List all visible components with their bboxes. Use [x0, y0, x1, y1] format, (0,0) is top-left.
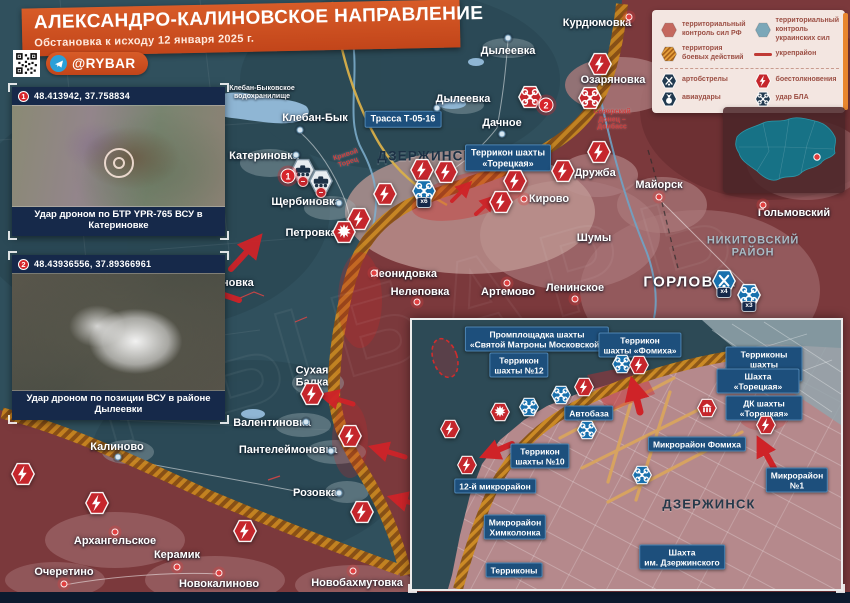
- settlement-dot[interactable]: [328, 448, 335, 455]
- legend-item[interactable]: боестолкновения: [754, 73, 840, 89]
- map-legend: территориальный контроль сил РФтерритори…: [652, 10, 845, 113]
- inset-corner-mark: [8, 83, 17, 92]
- settlement-dot[interactable]: [626, 14, 633, 21]
- settlement-dot[interactable]: [656, 194, 663, 201]
- legend-icon-lineRed[interactable]: [754, 53, 772, 56]
- place-label[interactable]: Валентиновка: [233, 417, 311, 429]
- place-label[interactable]: Клебан-Быковское водохранилище: [229, 85, 295, 101]
- river-label[interactable]: Северский Донец – Донбасс: [593, 108, 630, 131]
- video-caption: Удар дроном по позиции ВСУ в районе Дыле…: [12, 391, 225, 420]
- map-icon-veh[interactable]: –: [309, 169, 333, 193]
- city-inset-dzerzhinsk: Промплощадка шахты «Святой Матроны Моско…: [410, 318, 843, 591]
- legend-divider[interactable]: [660, 68, 839, 69]
- channel-handle: @RYBAR: [72, 56, 136, 71]
- map-icon-artB[interactable]: x4: [712, 269, 736, 293]
- map-icon-uavB[interactable]: x6: [412, 179, 436, 203]
- settlement-dot[interactable]: [414, 299, 421, 306]
- inset-callout-label[interactable]: 12-й микрорайон: [454, 478, 536, 493]
- map-icon-clash[interactable]: [350, 500, 374, 524]
- settlement-dot[interactable]: [371, 270, 378, 277]
- title-banner: АЛЕКСАНДРО-КАЛИНОВСКОЕ НАПРАВЛЕНИЕ Обста…: [22, 0, 461, 56]
- place-label[interactable]: Леонидовка: [371, 268, 437, 280]
- map-icon-clash[interactable]: [489, 190, 513, 214]
- map-icon-strike[interactable]: [490, 402, 510, 422]
- map-icon-clash[interactable]: [11, 462, 35, 486]
- inset-callout-label[interactable]: Промплощадка шахты «Святой Матроны Моско…: [465, 326, 609, 351]
- inset-corner-mark: [8, 231, 17, 240]
- legend-label[interactable]: боестолкновения: [776, 76, 837, 85]
- legend-icon-uavD[interactable]: [754, 91, 772, 107]
- place-label[interactable]: Архангельское: [74, 535, 156, 547]
- city-inset-label-layer: Промплощадка шахты «Святой Матроны Моско…: [412, 320, 841, 589]
- legend-icon-clash[interactable]: [754, 73, 772, 89]
- map-icon-uavB[interactable]: [551, 385, 571, 405]
- video-caption: Удар дроном по БТР YPR-765 ВСУ в Катерин…: [12, 207, 225, 236]
- icon-count-badge: x3: [741, 301, 756, 312]
- inset-corner-mark: [220, 231, 229, 240]
- settlement-dot[interactable]: [572, 296, 579, 303]
- legend-icon-hexStripe[interactable]: [660, 46, 678, 62]
- legend-label[interactable]: артобстрелы: [682, 76, 728, 85]
- inset-corner-mark: [836, 584, 845, 593]
- map-icon-uavB[interactable]: [577, 420, 597, 440]
- settlement-dot[interactable]: [336, 200, 343, 207]
- settlement-dot[interactable]: [760, 202, 767, 209]
- place-label[interactable]: Пантелеймоновка: [239, 444, 337, 456]
- place-label[interactable]: Клебан-Бык: [282, 112, 348, 124]
- settlement-dot[interactable]: [336, 490, 343, 497]
- map-icon-clash[interactable]: [457, 455, 477, 475]
- map-icon-uavB[interactable]: x3: [737, 283, 761, 307]
- drone-video-frame[interactable]: [12, 105, 225, 207]
- inset-corner-mark: [220, 83, 229, 92]
- settlement-dot[interactable]: [303, 419, 310, 426]
- map-icon-clash[interactable]: [85, 491, 109, 515]
- icon-count-badge: –: [316, 187, 327, 198]
- map-icon-clash[interactable]: [434, 160, 458, 184]
- legend-icon-hexBlue[interactable]: [754, 22, 772, 38]
- settlement-dot[interactable]: [115, 454, 122, 461]
- settlement-dot[interactable]: [499, 131, 506, 138]
- inset-corner-mark: [8, 251, 17, 260]
- settlement-dot[interactable]: [174, 564, 181, 571]
- qr-code[interactable]: [13, 50, 40, 77]
- place-label[interactable]: Калиново: [90, 441, 143, 453]
- settlement-dot[interactable]: [521, 196, 528, 203]
- place-label[interactable]: Кирово: [529, 193, 569, 205]
- drone-video-inset-1[interactable]: 1 48.413942, 37.758834 Удар дроном по БТ…: [12, 87, 225, 236]
- inset-corner-mark: [220, 415, 229, 424]
- river-label[interactable]: Кривой Торец: [332, 148, 361, 171]
- inset-callout-label[interactable]: Автобаза: [564, 405, 613, 420]
- place-label[interactable]: Нелеповка: [391, 286, 450, 298]
- inset-city-label[interactable]: ДЗЕРЖИНСК: [662, 498, 755, 513]
- legend-label[interactable]: авиаудары: [682, 94, 721, 103]
- numbered-marker[interactable]: 2: [539, 98, 554, 113]
- icon-count-badge: –: [298, 176, 309, 187]
- inset-callout-label[interactable]: Терриконы: [486, 562, 543, 577]
- numbered-marker[interactable]: 1: [281, 169, 296, 184]
- telegram-channel-badge[interactable]: @RYBAR: [46, 52, 148, 75]
- inset-callout-label[interactable]: Шахта «Торецкая»: [717, 368, 800, 393]
- place-label[interactable]: Курдюмовка: [563, 17, 631, 29]
- legend-item[interactable]: артобстрелы: [660, 73, 746, 89]
- inset-callout-label[interactable]: Микрорайон Химколонка: [484, 514, 546, 539]
- map-icon-clash[interactable]: [300, 382, 324, 406]
- coordinates-text: 48.413942, 37.758834: [34, 91, 130, 101]
- legend-item[interactable]: удар БЛА: [754, 91, 840, 107]
- inset-callout-label[interactable]: Террикон шахты «Фомиха»: [598, 332, 681, 357]
- legend-item[interactable]: территориальный контроль сил РФ: [660, 17, 746, 43]
- map-screenshot: РЫБАРЬ КурдюмовкаДылеевкаДылеевкаОзаряно…: [0, 0, 850, 603]
- inset-callout-label[interactable]: Шахта им. Дзержинского: [639, 544, 725, 569]
- map-icon-clash[interactable]: [551, 159, 575, 183]
- place-label[interactable]: Майорск: [635, 179, 682, 191]
- icon-count-badge: x4: [716, 287, 731, 298]
- place-label[interactable]: Новокалиново: [179, 578, 259, 590]
- telegram-icon: [50, 55, 67, 72]
- legend-item[interactable]: авиаудары: [660, 91, 746, 107]
- inset-corner-mark: [220, 251, 229, 260]
- legend-label[interactable]: укрепрайон: [776, 50, 817, 59]
- map-icon-clash[interactable]: [373, 182, 397, 206]
- legend-icon-artD[interactable]: [660, 73, 678, 89]
- map-icon-strike[interactable]: [332, 220, 356, 244]
- map-icon-clash[interactable]: [574, 377, 594, 397]
- legend-label[interactable]: территория боевых действий: [682, 45, 743, 63]
- place-label[interactable]: НИКИТОВСКИЙ РАЙОН: [707, 235, 799, 260]
- legend-item[interactable]: территориальный контроль украинских сил: [754, 17, 840, 43]
- drone-video-frame[interactable]: [12, 273, 225, 391]
- inset-callout-label[interactable]: Террикон шахты №12: [489, 352, 548, 377]
- legend-label[interactable]: территориальный контроль украинских сил: [776, 17, 840, 43]
- settlement-dot[interactable]: [434, 105, 441, 112]
- settlement-dot[interactable]: [350, 568, 357, 575]
- place-label[interactable]: Ленинское: [546, 282, 604, 294]
- settlement-dot[interactable]: [505, 35, 512, 42]
- inset-callout-label[interactable]: Террикон шахты №10: [510, 443, 569, 468]
- map-icon-clash[interactable]: [440, 419, 460, 439]
- inset-callout-label[interactable]: Микрорайон Фомиха: [648, 436, 746, 451]
- place-label[interactable]: Артемово: [481, 286, 535, 298]
- ukraine-map: [723, 107, 845, 193]
- map-icon-uavR[interactable]: [578, 86, 602, 110]
- map-icon-uavB[interactable]: [632, 465, 652, 485]
- place-label[interactable]: Шумы: [577, 232, 612, 244]
- settlement-dot[interactable]: [504, 280, 511, 287]
- place-label[interactable]: Розовка: [293, 487, 337, 499]
- legend-label[interactable]: удар БЛА: [776, 94, 809, 103]
- place-label[interactable]: Петровка: [285, 227, 336, 239]
- legend-label[interactable]: территориальный контроль сил РФ: [682, 21, 746, 39]
- place-label[interactable]: Катериновка: [229, 150, 299, 162]
- crosshair-reticle: [104, 148, 134, 178]
- map-callout-label[interactable]: Трасса Т-05-16: [365, 111, 442, 128]
- settlement-dot[interactable]: [297, 127, 304, 134]
- marker-number-badge: 2: [18, 259, 29, 270]
- video-header: 2 48.43936556, 37.89366961: [12, 255, 225, 273]
- fortification-line-icon[interactable]: [754, 53, 772, 56]
- place-label[interactable]: Дылеевка: [436, 93, 491, 105]
- inset-callout-label[interactable]: Микрорайон №1: [766, 467, 828, 492]
- bottom-strip: [0, 592, 850, 603]
- video-header: 1 48.413942, 37.758834: [12, 87, 225, 105]
- map-icon-clash[interactable]: [629, 355, 649, 375]
- map-icon-uavB[interactable]: [519, 397, 539, 417]
- drone-video-inset-2[interactable]: 2 48.43936556, 37.89366961 Удар дроном п…: [12, 255, 225, 420]
- place-label[interactable]: Дружба: [574, 167, 615, 179]
- map-icon-clash[interactable]: [756, 415, 776, 435]
- legend-icon-hexRed[interactable]: [660, 22, 678, 38]
- legend-item[interactable]: территория боевых действий: [660, 45, 746, 63]
- coordinates-text: 48.43936556, 37.89366961: [34, 259, 151, 269]
- legend-icon-bombD[interactable]: [660, 91, 678, 107]
- place-label[interactable]: Дылеевка: [481, 45, 536, 57]
- place-label[interactable]: Новобахмутовка: [311, 577, 403, 589]
- place-label[interactable]: Очеретино: [34, 566, 93, 578]
- inset-corner-mark: [408, 584, 417, 593]
- place-label[interactable]: Гольмовский: [758, 207, 830, 219]
- map-icon-clash[interactable]: [338, 424, 362, 448]
- map-icon-clash[interactable]: [588, 52, 612, 76]
- settlement-dot[interactable]: [216, 570, 223, 577]
- place-label[interactable]: Керамик: [154, 549, 200, 561]
- map-callout-label[interactable]: Террикон шахты «Торецкая»: [465, 144, 551, 171]
- marker-number-badge: 1: [18, 91, 29, 102]
- place-label[interactable]: Дачное: [482, 117, 522, 129]
- settlement-dot[interactable]: [112, 529, 119, 536]
- map-icon-bld[interactable]: [697, 398, 717, 418]
- settlement-dot[interactable]: [61, 581, 68, 588]
- map-icon-clash[interactable]: [233, 519, 257, 543]
- map-icon-clash[interactable]: [587, 140, 611, 164]
- ukraine-locator-inset: [723, 107, 845, 193]
- icon-count-badge: x6: [416, 197, 431, 208]
- place-label[interactable]: Щербиновка: [271, 196, 340, 208]
- legend-item[interactable]: укрепрайон: [754, 45, 840, 63]
- inset-corner-mark: [8, 415, 17, 424]
